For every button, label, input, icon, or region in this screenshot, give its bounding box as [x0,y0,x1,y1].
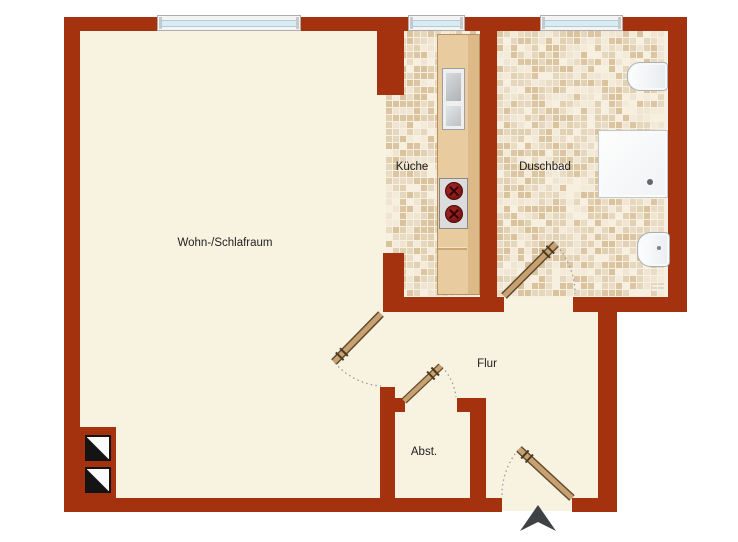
floor-plan: Wohn-/Schlafraum Küche Duschbad Flur Abs… [0,0,738,542]
room-label-flur: Flur [460,358,514,370]
room-label-duschbad: Duschbad [505,161,585,173]
room-label-wohn: Wohn-/Schlafraum [150,237,300,249]
bathroom-door [504,244,575,296]
entrance-arrow-icon [520,505,556,531]
doors-overlay [0,0,738,542]
storage-door [404,366,456,401]
living-room-door [334,314,381,386]
room-label-abst: Abst. [399,446,449,458]
room-label-kueche: Küche [386,161,438,173]
entrance-door [502,449,572,498]
